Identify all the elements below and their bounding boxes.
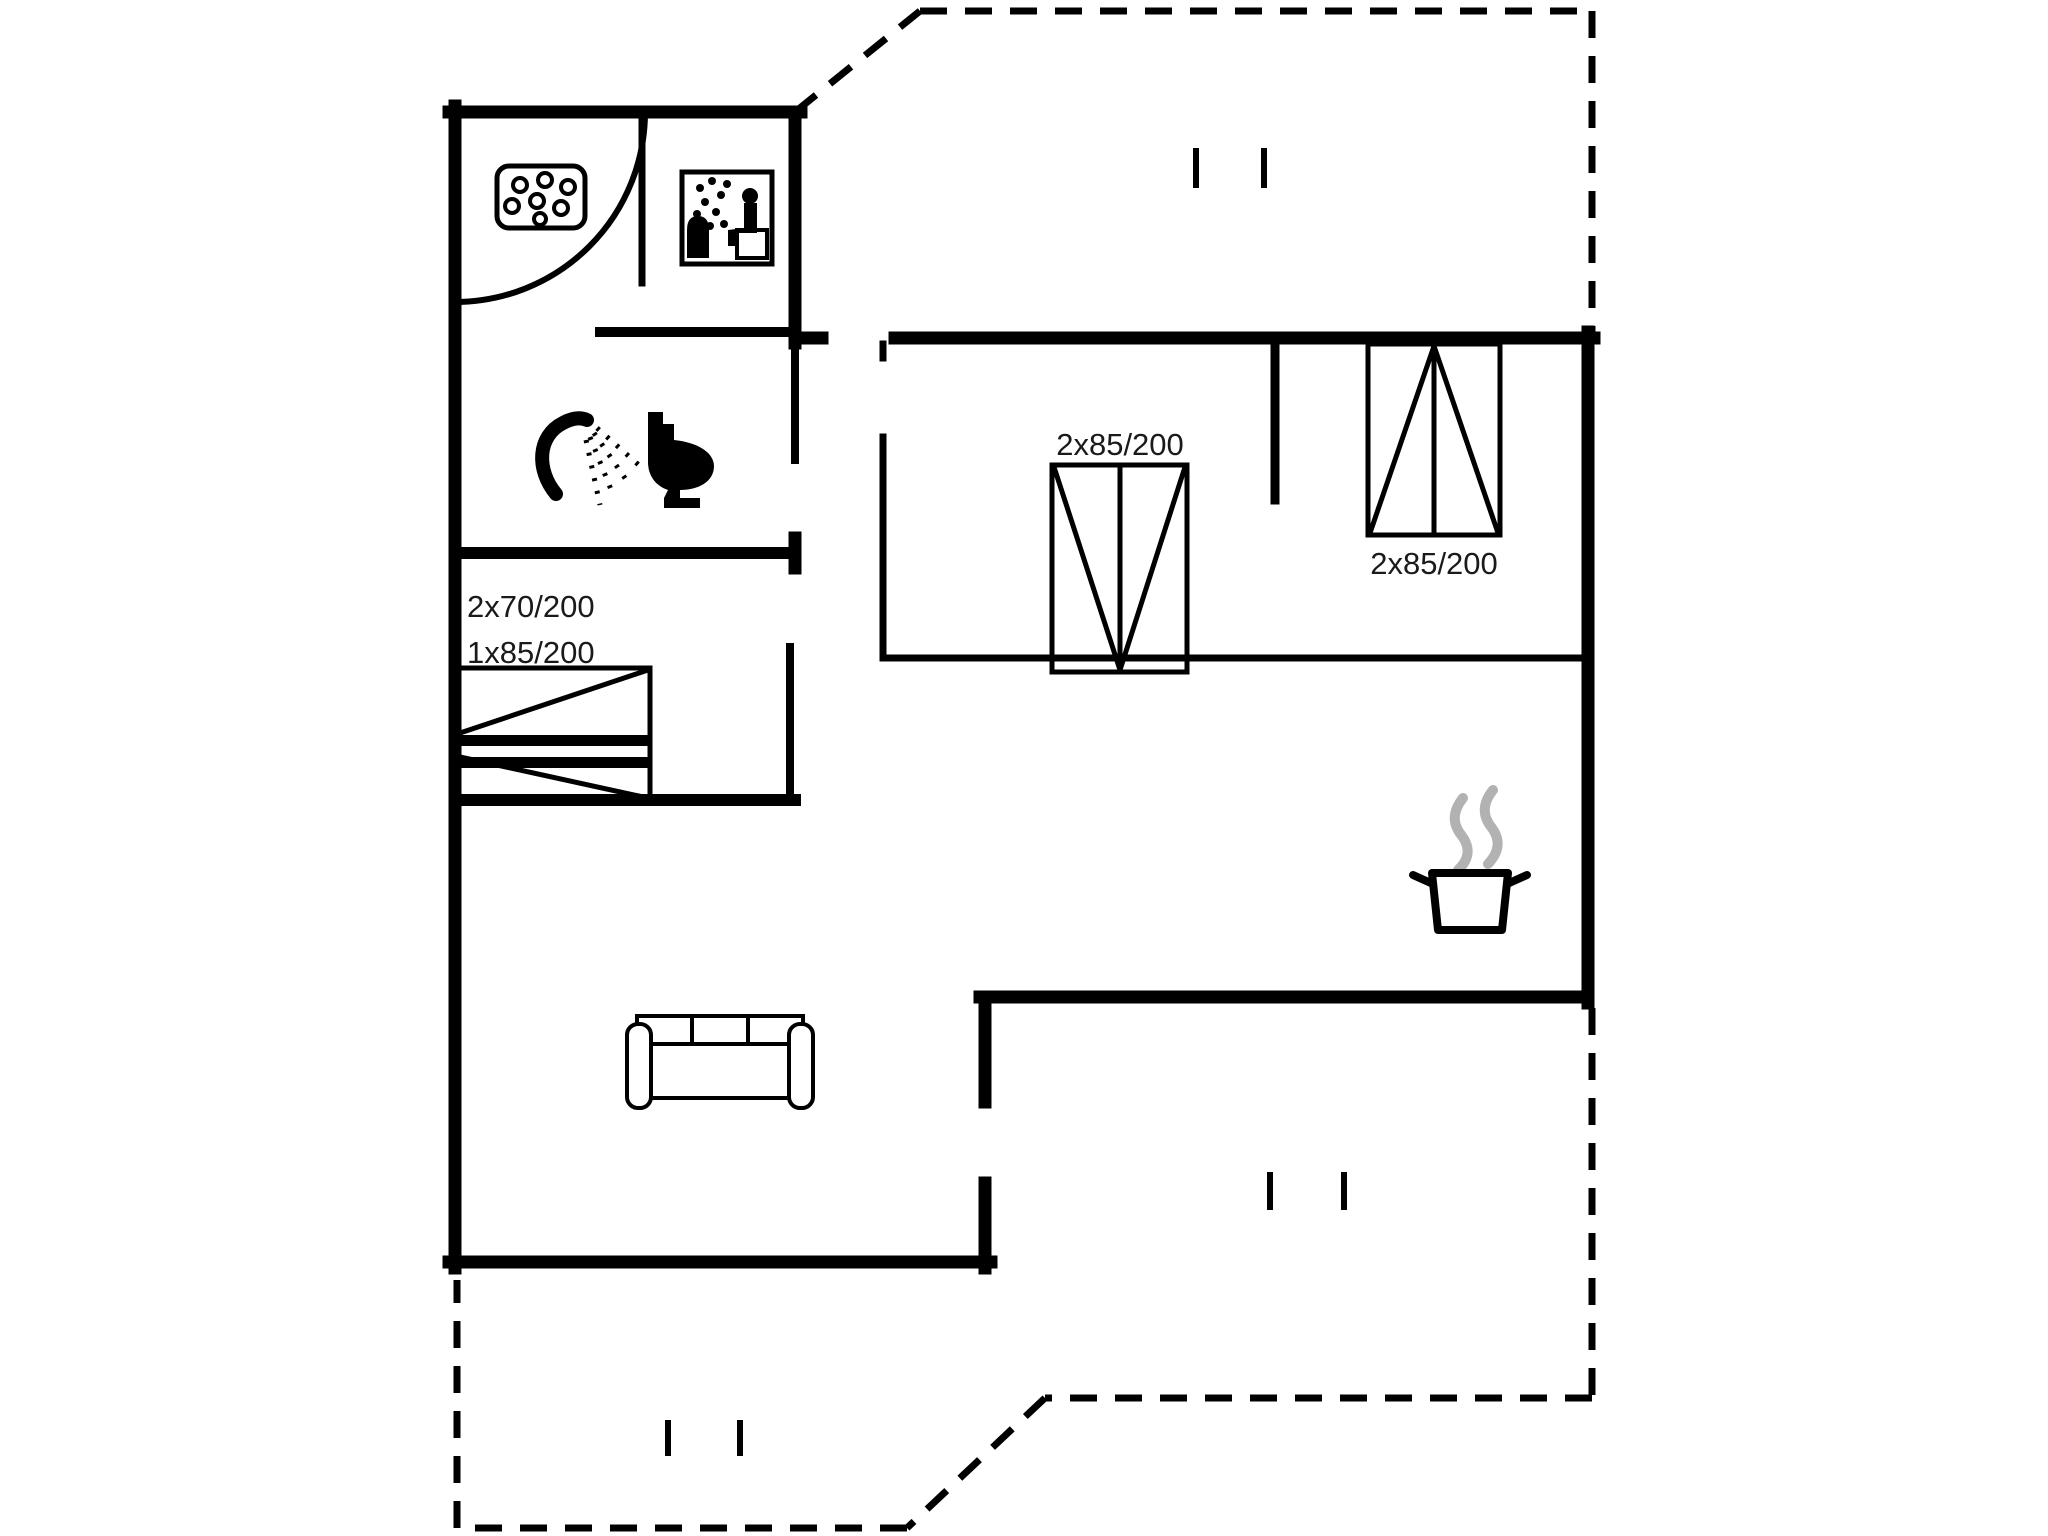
double-bed-middle-icon	[1052, 465, 1187, 672]
outer-walls	[449, 106, 1594, 1268]
whirlpool-icon	[497, 166, 585, 228]
bunk-bed-size-line1: 2x70/200	[467, 584, 595, 630]
floor-plan-drawing	[0, 0, 2048, 1536]
sauna-heater	[687, 216, 709, 258]
double-bed-right-icon	[1368, 344, 1500, 535]
shower-icon	[542, 418, 641, 505]
cooking-pot-icon	[1413, 790, 1527, 930]
sofa-icon	[627, 1016, 813, 1108]
middle-bedroom-bed-size-label: 2x85/200	[1035, 422, 1205, 468]
terrace-bottom-diagonal-edge	[907, 1398, 1045, 1528]
bunk-bed-size-line2: 1x85/200	[467, 630, 595, 676]
bunk-bed-size-label: 2x70/200 1x85/200	[467, 584, 595, 676]
toilet-icon	[648, 412, 714, 508]
pot-body	[1432, 873, 1508, 930]
sauna-icon	[682, 172, 772, 264]
steam-squiggles	[1455, 790, 1498, 870]
right-bedroom-bed-size-label: 2x85/200	[1349, 541, 1519, 587]
terrace-top-diagonal-edge	[795, 11, 920, 112]
door-swing-arc	[455, 112, 645, 302]
terrace-dashed-boundary	[457, 11, 1592, 1528]
floor-plan: 2x70/200 1x85/200 2x85/200 2x85/200	[0, 0, 2048, 1536]
sauna-bench	[737, 230, 767, 258]
bunk-bed-icon	[458, 668, 650, 800]
